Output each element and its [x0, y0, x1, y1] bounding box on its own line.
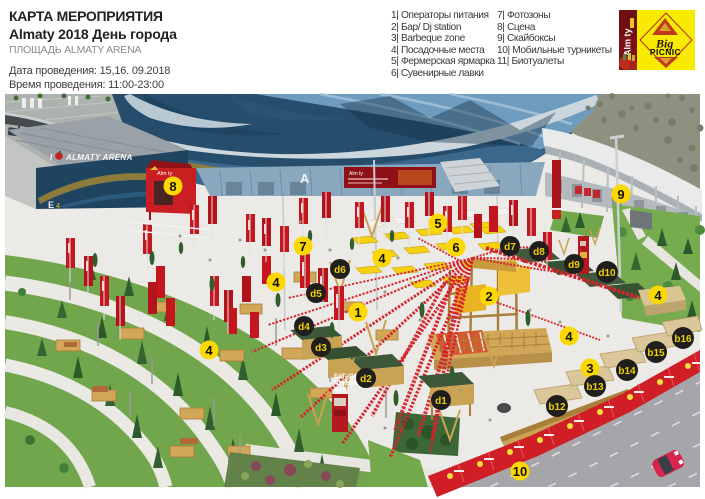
svg-text:4: 4	[654, 288, 662, 303]
svg-text:b16: b16	[674, 334, 692, 345]
svg-text:b14: b14	[618, 366, 636, 377]
svg-text:3: 3	[586, 361, 593, 376]
svg-text:d6: d6	[334, 265, 346, 276]
svg-text:ПИКНИК: ПИКНИК	[334, 381, 359, 387]
svg-text:8: 8	[169, 179, 176, 194]
svg-text:d4: d4	[298, 322, 310, 333]
svg-text:Alm ty: Alm ty	[349, 171, 363, 177]
svg-text:ALMATY ARENA: ALMATY ARENA	[65, 153, 133, 162]
svg-text:9: 9	[617, 187, 624, 202]
svg-text:2: 2	[485, 289, 492, 304]
svg-text:7: 7	[299, 239, 306, 254]
svg-text:5: 5	[434, 216, 441, 231]
svg-text:d8: d8	[533, 247, 545, 258]
svg-text:A: A	[300, 171, 310, 186]
svg-text:4: 4	[272, 275, 280, 290]
svg-text:d5: d5	[310, 289, 322, 300]
svg-text:b15: b15	[647, 348, 665, 359]
svg-text:d1: d1	[435, 396, 447, 407]
svg-text:ФУД: ФУД	[334, 388, 347, 394]
svg-text:d2: d2	[360, 374, 372, 385]
svg-text:b13: b13	[586, 382, 604, 393]
svg-text:d10: d10	[598, 268, 616, 279]
svg-text:1: 1	[354, 305, 361, 320]
svg-text:d7: d7	[504, 242, 516, 253]
svg-text:d9: d9	[568, 260, 580, 271]
svg-text:4: 4	[565, 329, 573, 344]
svg-text:10: 10	[513, 464, 527, 479]
svg-text:E: E	[48, 200, 54, 210]
svg-text:d3: d3	[315, 343, 327, 354]
svg-text:4: 4	[56, 203, 60, 210]
svg-text:4: 4	[378, 251, 386, 266]
svg-text:b12: b12	[548, 402, 566, 413]
svg-text:Alm ty: Alm ty	[157, 171, 173, 177]
svg-text:6: 6	[452, 240, 459, 255]
svg-text:4: 4	[205, 343, 213, 358]
